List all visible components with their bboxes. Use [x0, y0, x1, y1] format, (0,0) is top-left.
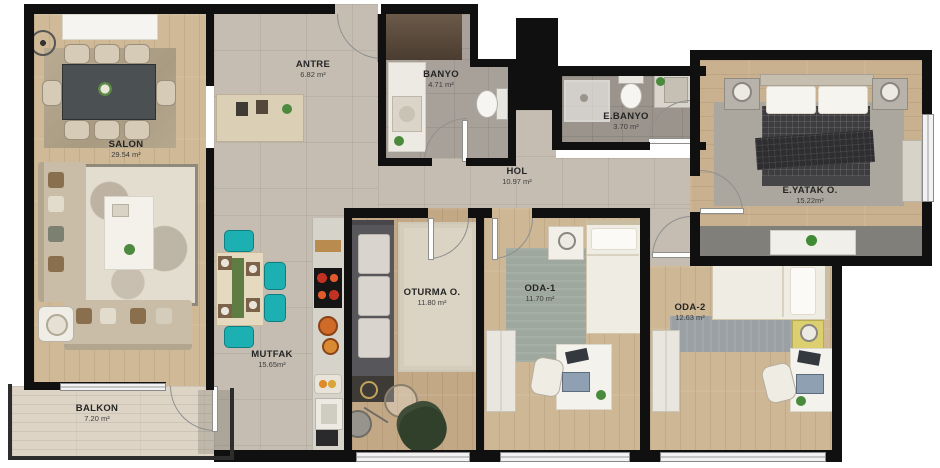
coffee-machine	[316, 430, 338, 446]
balcony-wall	[8, 456, 234, 460]
banyo-sink	[392, 96, 422, 132]
wardrobe	[652, 330, 680, 412]
master-bed-headboard	[760, 74, 874, 86]
banyo-cabinet	[386, 14, 462, 60]
room-name: OTURMA O.	[404, 288, 461, 298]
dining-chair	[94, 120, 120, 140]
wardrobe	[486, 330, 516, 412]
room-name: HOL	[502, 167, 532, 177]
dining-flowers	[98, 82, 112, 96]
bowl	[318, 316, 338, 336]
wall-segment	[476, 218, 484, 458]
laptop	[796, 374, 824, 394]
wall-segment	[206, 148, 214, 390]
room-label-salon: SALON 29.54 m²	[109, 140, 144, 159]
bed-pillow	[766, 86, 816, 114]
kitchen-chair	[264, 294, 286, 322]
sofa-pillow	[48, 172, 64, 188]
sofa-pillow	[100, 308, 116, 324]
balcony-wall	[230, 388, 234, 458]
cutting-board	[315, 240, 341, 252]
wall-segment	[344, 208, 352, 460]
table-lamp	[800, 324, 818, 342]
antre-frame	[256, 100, 268, 114]
room-area: 11.70 m²	[524, 294, 555, 303]
bed-pillow	[818, 86, 868, 114]
wall-segment	[378, 14, 386, 162]
bowl	[322, 338, 339, 355]
ebanyo-sink	[664, 77, 688, 103]
kitchen-chair	[224, 326, 254, 348]
table-lamp	[732, 82, 752, 102]
wall-segment	[24, 4, 335, 14]
wall-segment	[508, 62, 516, 162]
dining-chair	[94, 44, 120, 64]
room-name: SALON	[109, 140, 144, 150]
wall-segment	[922, 50, 932, 114]
bed-pillow	[790, 267, 816, 315]
dining-chair	[124, 120, 150, 140]
desk-plant	[796, 396, 806, 406]
kitchen-chair	[224, 230, 254, 252]
dining-chair	[64, 44, 90, 64]
room-name: MUTFAK	[251, 350, 292, 360]
window-seat	[902, 140, 922, 202]
sofa-pillow	[156, 308, 172, 324]
room-label-antre: ANTRE 6.82 m²	[296, 60, 330, 79]
place-setting	[218, 256, 232, 270]
floor-plan: SALON 29.54 m² ANTRE 6.82 m² BANYO 4.71 …	[0, 0, 940, 468]
window	[60, 383, 166, 391]
fruit-plate	[314, 374, 342, 394]
antre-frame	[236, 102, 248, 116]
room-label-eyatak: E.YATAK O. 15.22m²	[782, 186, 837, 205]
sofa-pillow	[130, 308, 146, 324]
room-area: 10.97 m²	[502, 177, 532, 186]
dining-chair	[64, 120, 90, 140]
wall-segment	[206, 14, 214, 86]
wall-segment	[378, 158, 432, 166]
table-lamp	[558, 232, 576, 250]
wall-segment	[381, 4, 478, 14]
antre-plant	[282, 104, 292, 114]
wall-segment	[24, 4, 34, 390]
wall-segment	[690, 50, 700, 176]
kitchen-table-runner	[232, 258, 244, 318]
dining-chair	[42, 80, 62, 106]
room-area: 15.65m²	[251, 360, 292, 369]
kitchen-sink	[315, 398, 343, 430]
wall-segment	[468, 208, 492, 218]
sofa-cushion	[358, 234, 390, 274]
room-name: E.YATAK O.	[782, 186, 837, 196]
sofa-pillow	[48, 226, 64, 242]
room-area: 6.82 m²	[296, 70, 330, 79]
floor-hol	[378, 158, 690, 215]
room-name: BALKON	[76, 404, 118, 414]
door-leaf	[652, 252, 692, 258]
room-label-hol: HOL 10.97 m²	[502, 167, 532, 186]
dining-chair	[156, 80, 176, 106]
room-label-ebanyo: E.BANYO 3.70 m²	[603, 112, 648, 131]
toilet-bowl	[476, 90, 498, 118]
door-leaf	[212, 386, 218, 432]
desk-plant	[596, 390, 606, 400]
stove	[314, 268, 342, 308]
place-setting	[246, 262, 260, 276]
floor-hol-upper	[512, 110, 556, 165]
oturma-tray	[360, 381, 378, 399]
room-label-balkon: BALKON 7.20 m²	[76, 404, 118, 423]
room-name: ODA-1	[524, 284, 555, 294]
place-setting	[246, 298, 260, 312]
bed-pillow	[591, 228, 637, 250]
sofa-cushion	[358, 276, 390, 316]
room-label-oda2: ODA-2 12.63 m²	[674, 303, 705, 322]
room-area: 11.80 m²	[404, 298, 461, 307]
room-area: 29.54 m²	[109, 150, 144, 159]
room-area: 12.63 m²	[674, 313, 705, 322]
room-area: 3.70 m²	[603, 122, 648, 131]
salon-console	[62, 14, 158, 40]
wall-segment	[690, 256, 932, 266]
sofa-pillow	[76, 308, 92, 324]
oda1-blanket-line	[587, 254, 639, 256]
wall-segment	[352, 208, 428, 218]
balcony-wall	[8, 384, 12, 460]
door-leaf	[700, 208, 744, 214]
room-area: 15.22m²	[782, 196, 837, 205]
dresser-plant	[806, 235, 817, 246]
salon-side-table-tray	[46, 314, 68, 336]
door-leaf	[428, 218, 434, 260]
room-label-banyo: BANYO 4.71 m²	[423, 70, 459, 89]
window	[660, 452, 826, 462]
room-name: BANYO	[423, 70, 459, 80]
table-lamp	[880, 82, 900, 102]
kitchen-chair	[264, 262, 286, 290]
wall-segment	[640, 208, 650, 460]
wall-segment	[922, 200, 932, 262]
window	[356, 452, 470, 462]
room-name: ANTRE	[296, 60, 330, 70]
wall-segment	[832, 260, 842, 460]
shower-drain	[580, 94, 588, 102]
room-name: E.BANYO	[603, 112, 648, 122]
wall-segment	[552, 142, 650, 150]
room-area: 4.71 m²	[423, 80, 459, 89]
wall-segment	[552, 66, 706, 76]
ebanyo-plant	[656, 77, 665, 86]
toilet-bowl	[620, 83, 642, 109]
room-area: 7.20 m²	[76, 414, 118, 423]
wall-segment	[470, 4, 478, 62]
coffee-table-tray	[112, 204, 129, 217]
laptop	[562, 372, 590, 392]
door-leaf	[492, 218, 498, 260]
window	[500, 452, 630, 462]
oda2-blanket-line	[782, 263, 784, 317]
sofa-pillow	[48, 196, 64, 212]
window	[922, 114, 934, 202]
coffee-table-plant	[124, 244, 135, 255]
dining-chair	[124, 44, 150, 64]
room-label-oturma: OTURMA O. 11.80 m²	[404, 288, 461, 307]
sofa-pillow	[48, 256, 64, 272]
room-label-mutfak: MUTFAK 15.65m²	[251, 350, 292, 369]
wall-segment	[690, 50, 932, 60]
wall-segment	[552, 66, 562, 150]
sofa-cushion	[358, 318, 390, 358]
wall-segment	[532, 208, 648, 218]
door-leaf	[648, 138, 692, 144]
place-setting	[218, 304, 232, 318]
door-leaf	[462, 120, 468, 162]
room-label-oda1: ODA-1 11.70 m²	[524, 284, 555, 303]
banyo-plant	[394, 136, 404, 146]
room-name: ODA-2	[674, 303, 705, 313]
